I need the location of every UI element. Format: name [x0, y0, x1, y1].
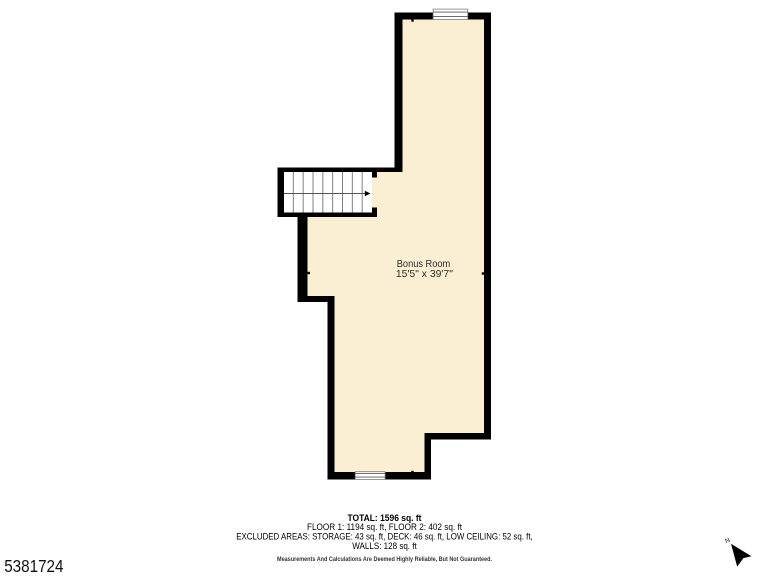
svg-text:15'5" x 39'7": 15'5" x 39'7"	[396, 269, 453, 280]
svg-text:WALLS: 128 sq. ft: WALLS: 128 sq. ft	[352, 541, 417, 551]
svg-text:N: N	[724, 537, 732, 546]
svg-text:5381724: 5381724	[4, 556, 64, 576]
svg-text:Measurements And Calculations: Measurements And Calculations Are Deemed…	[277, 557, 492, 563]
